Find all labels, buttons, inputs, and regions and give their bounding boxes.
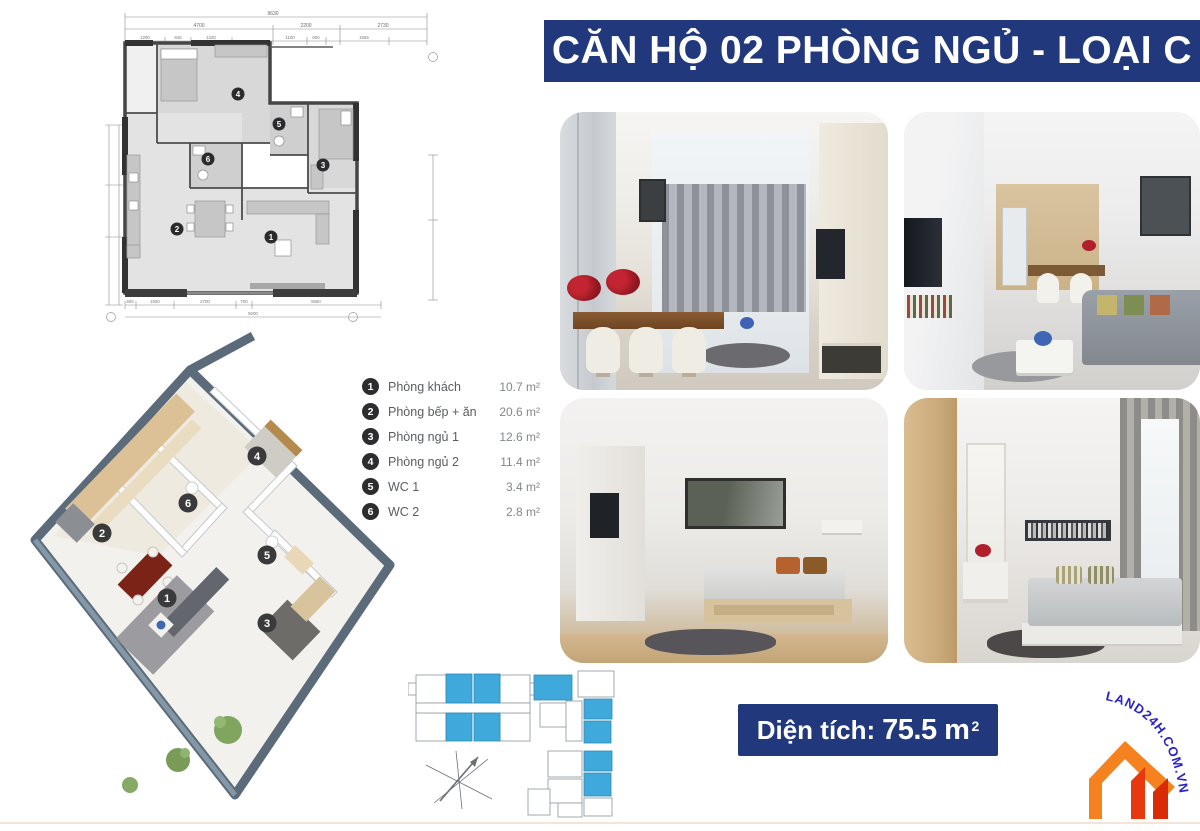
svg-text:3: 3 [264,618,270,630]
svg-text:1290: 1290 [140,35,150,40]
svg-text:4: 4 [236,90,241,99]
red-flowers [975,544,991,557]
svg-text:600: 600 [312,35,320,40]
wall-picture [685,478,786,529]
book-shelf [907,295,954,317]
svg-text:1320: 1320 [206,35,216,40]
tv-screen [816,229,846,279]
svg-text:3: 3 [321,161,326,170]
bar-stool [1037,273,1059,303]
apartment-shell [35,336,390,795]
svg-text:6: 6 [206,155,211,164]
svg-text:4: 4 [254,451,261,463]
wall-picture [1140,176,1191,236]
building-outline-units [408,671,614,817]
floor-plan-3d: 1 2 3 4 5 6 [10,330,410,815]
wall-picture [639,179,666,222]
dressing-table [963,562,1007,599]
pillow [803,557,827,574]
svg-text:700: 700 [240,299,248,304]
wall-shelf [822,520,861,535]
svg-text:5: 5 [264,550,270,562]
room-area: 11.4 m² [500,455,540,469]
svg-text:6: 6 [185,498,191,510]
area-label: Diện tích: [757,715,875,746]
red-flowers [567,275,601,301]
svg-text:1565: 1565 [359,35,369,40]
svg-text:500: 500 [126,299,134,304]
pillow [1056,566,1082,584]
dining-chair [672,327,706,373]
svg-text:5660: 5660 [311,299,321,304]
pillow [1150,295,1170,315]
svg-text:9630: 9630 [267,11,278,17]
land24h-logo: LAND24H.COM.VN [1085,686,1200,831]
bed-base [1022,623,1182,644]
page-title: CĂN HỘ 02 PHÒNG NGỦ - LOẠI C [552,29,1192,73]
bar-counter [1028,265,1105,276]
svg-text:4700: 4700 [193,23,204,29]
photo-bedroom-1 [560,398,888,663]
svg-text:1650: 1650 [150,299,160,304]
svg-text:2730: 2730 [377,23,388,29]
photo-dining-living-room [560,112,888,390]
bed [1028,578,1182,626]
pillow [1088,566,1114,584]
photo-bedroom-2 [904,398,1200,663]
photo-living-room-kitchen [904,112,1200,390]
bottom-divider [0,822,1200,824]
fridge [1002,207,1028,287]
svg-text:1: 1 [164,593,170,605]
pillow [1124,295,1144,315]
house-icon [1089,741,1175,819]
window [1141,419,1179,605]
svg-text:1: 1 [269,233,274,242]
svg-text:845: 845 [174,35,182,40]
books [1028,523,1108,539]
area-value: 75.5 m [882,714,969,747]
area-sup: 2 [971,718,979,734]
svg-text:9200: 9200 [248,311,258,316]
svg-text:2700: 2700 [200,299,210,304]
room-area: 2.8 m² [506,505,540,519]
tv-screen [904,218,942,288]
bed-drawers [714,605,753,616]
title-banner: CĂN HỘ 02 PHÒNG NGỦ - LOẠI C [544,20,1200,82]
wood-wardrobe [904,398,957,663]
pillow [776,557,800,574]
curtains [662,184,806,312]
svg-text:2: 2 [99,528,105,540]
room-area: 3.4 m² [506,480,540,494]
compass-rose [426,751,492,809]
area-banner: Diện tích: 75.5 m 2 [738,704,998,756]
floor-plan-2d: 9630 4700 2200 2730 1290 845 1320 1100 6… [95,5,440,325]
svg-text:2: 2 [175,225,180,234]
room-area: 12.6 m² [499,430,540,444]
building-key-plan [408,663,720,825]
dining-chair [629,327,663,373]
pillow [1097,295,1117,315]
tv-screen [590,493,620,538]
svg-text:2200: 2200 [300,23,311,29]
book-shelf [822,343,881,374]
blue-flowers [1034,331,1052,346]
room-area: 10.7 m² [499,380,540,394]
dining-table [573,312,724,329]
room-area: 20.6 m² [499,405,540,419]
red-flowers [1082,240,1096,251]
svg-text:1100: 1100 [285,35,295,40]
svg-text:5: 5 [277,120,282,129]
dining-chair [586,327,620,373]
flyer-page: CĂN HỘ 02 PHÒNG NGỦ - LOẠI C 9630 4700 2… [0,0,1200,831]
red-flowers [606,269,640,295]
rug [701,343,790,368]
rug [645,629,776,656]
